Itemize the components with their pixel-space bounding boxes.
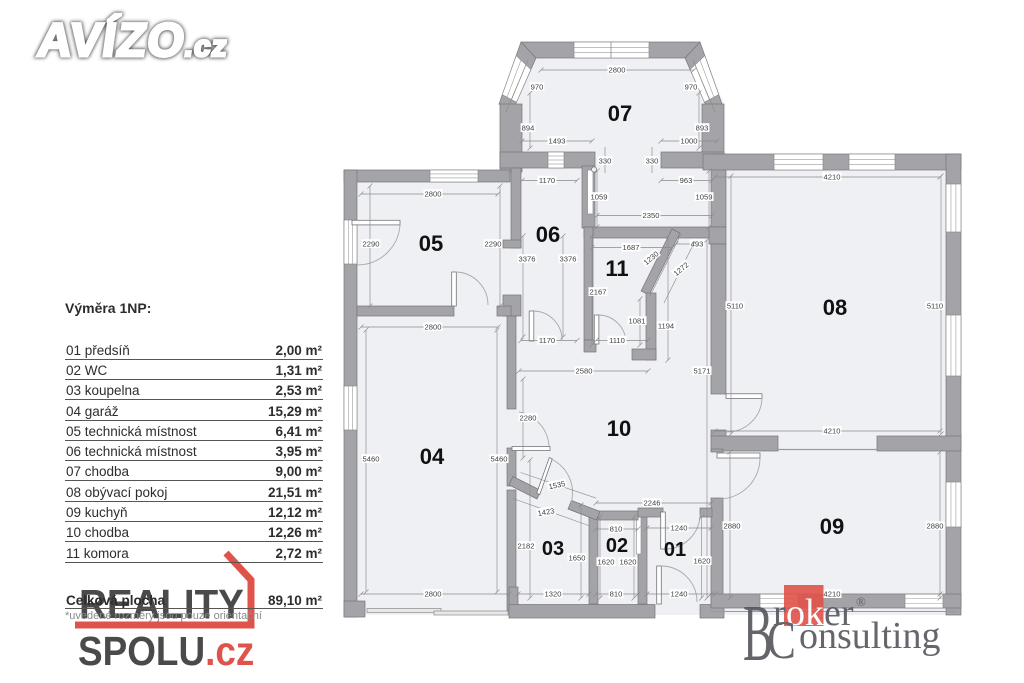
svg-text:2246: 2246 xyxy=(644,499,661,508)
svg-text:970: 970 xyxy=(685,83,698,92)
svg-text:01: 01 xyxy=(664,539,686,561)
svg-text:onsulting: onsulting xyxy=(799,615,940,657)
svg-text:2800: 2800 xyxy=(609,66,626,75)
svg-text:330: 330 xyxy=(599,157,612,166)
svg-text:5110: 5110 xyxy=(927,302,943,311)
svg-text:1687: 1687 xyxy=(623,243,640,252)
svg-text:963: 963 xyxy=(680,176,693,185)
svg-text:894: 894 xyxy=(522,124,535,133)
svg-text:2800: 2800 xyxy=(425,190,442,199)
svg-text:4210: 4210 xyxy=(824,427,841,436)
svg-text:1170: 1170 xyxy=(539,176,555,185)
svg-text:1620: 1620 xyxy=(694,557,711,566)
svg-text:1620: 1620 xyxy=(620,558,637,567)
svg-text:2880: 2880 xyxy=(927,522,944,531)
svg-text:2280: 2280 xyxy=(520,414,537,423)
svg-text:1240: 1240 xyxy=(671,524,688,533)
svg-text:330: 330 xyxy=(646,157,659,166)
svg-text:1110: 1110 xyxy=(609,336,625,345)
svg-text:2580: 2580 xyxy=(576,367,593,376)
svg-text:5460: 5460 xyxy=(363,455,380,464)
svg-text:2880: 2880 xyxy=(724,522,741,531)
svg-text:11: 11 xyxy=(605,256,628,281)
svg-text:04: 04 xyxy=(420,444,445,469)
svg-text:1194: 1194 xyxy=(658,322,674,331)
svg-text:AVÍZO.cz: AVÍZO.cz xyxy=(34,13,232,67)
svg-text:2290: 2290 xyxy=(485,240,502,249)
svg-text:2290: 2290 xyxy=(363,240,380,249)
svg-text:810: 810 xyxy=(610,525,623,534)
svg-text:2182: 2182 xyxy=(518,542,535,551)
svg-text:5110: 5110 xyxy=(727,302,743,311)
svg-text:1240: 1240 xyxy=(671,590,688,599)
svg-text:®: ® xyxy=(856,594,866,609)
svg-text:02: 02 xyxy=(606,535,628,557)
svg-text:1081: 1081 xyxy=(629,317,646,326)
svg-text:1650: 1650 xyxy=(569,554,586,563)
svg-text:05: 05 xyxy=(419,231,443,256)
svg-text:5460: 5460 xyxy=(491,455,508,464)
svg-text:1000: 1000 xyxy=(681,137,698,146)
svg-text:2350: 2350 xyxy=(643,211,660,220)
svg-text:08: 08 xyxy=(823,295,847,320)
svg-text:C: C xyxy=(767,609,796,670)
svg-text:1059: 1059 xyxy=(696,193,713,202)
svg-text:1059: 1059 xyxy=(591,193,608,202)
svg-text:893: 893 xyxy=(696,124,709,133)
svg-text:5171: 5171 xyxy=(694,367,711,376)
svg-text:09: 09 xyxy=(820,514,844,539)
svg-text:1493: 1493 xyxy=(549,137,566,146)
svg-text:4210: 4210 xyxy=(824,173,841,182)
svg-text:1170: 1170 xyxy=(539,336,555,345)
svg-text:07: 07 xyxy=(608,101,632,126)
svg-text:493: 493 xyxy=(691,240,704,249)
svg-text:2800: 2800 xyxy=(425,323,442,332)
svg-text:810: 810 xyxy=(610,590,623,599)
svg-text:10: 10 xyxy=(607,416,631,441)
svg-text:3376: 3376 xyxy=(560,255,577,264)
svg-text:06: 06 xyxy=(536,222,560,247)
svg-text:970: 970 xyxy=(531,83,544,92)
svg-text:2800: 2800 xyxy=(425,590,442,599)
svg-text:3376: 3376 xyxy=(519,255,536,264)
svg-text:2167: 2167 xyxy=(590,288,607,297)
svg-text:03: 03 xyxy=(542,538,564,560)
svg-text:1320: 1320 xyxy=(545,590,562,599)
svg-text:1620: 1620 xyxy=(598,558,615,567)
